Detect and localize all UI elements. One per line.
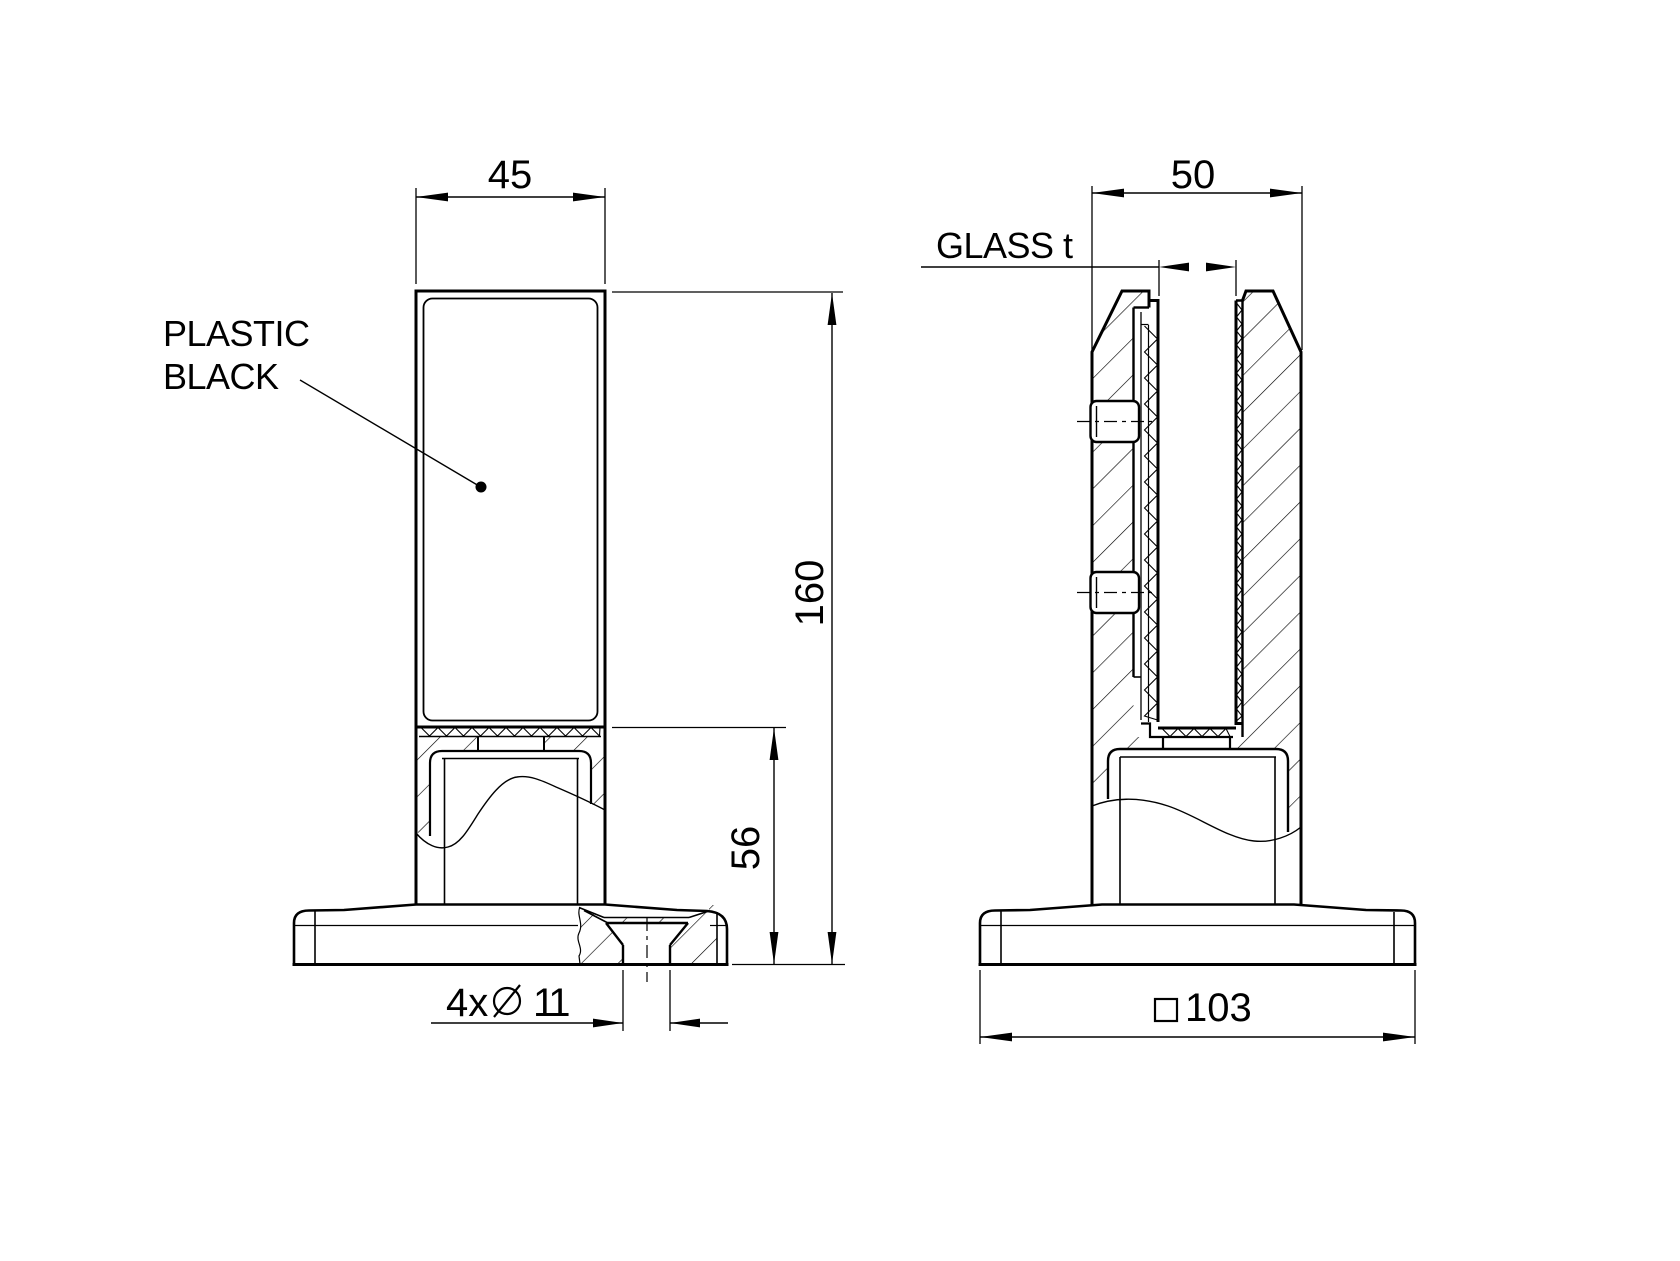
svg-text:4x: 4x [446,981,488,1025]
svg-text:103: 103 [1185,986,1252,1030]
svg-text:160: 160 [788,560,832,627]
svg-text:50: 50 [1171,153,1216,197]
svg-text:56: 56 [724,826,768,871]
svg-text:11: 11 [533,981,569,1025]
svg-text:PLASTIC: PLASTIC [163,313,310,354]
svg-text:GLASS t: GLASS t [936,225,1073,266]
svg-text:BLACK: BLACK [163,356,279,397]
svg-text:45: 45 [488,153,533,197]
